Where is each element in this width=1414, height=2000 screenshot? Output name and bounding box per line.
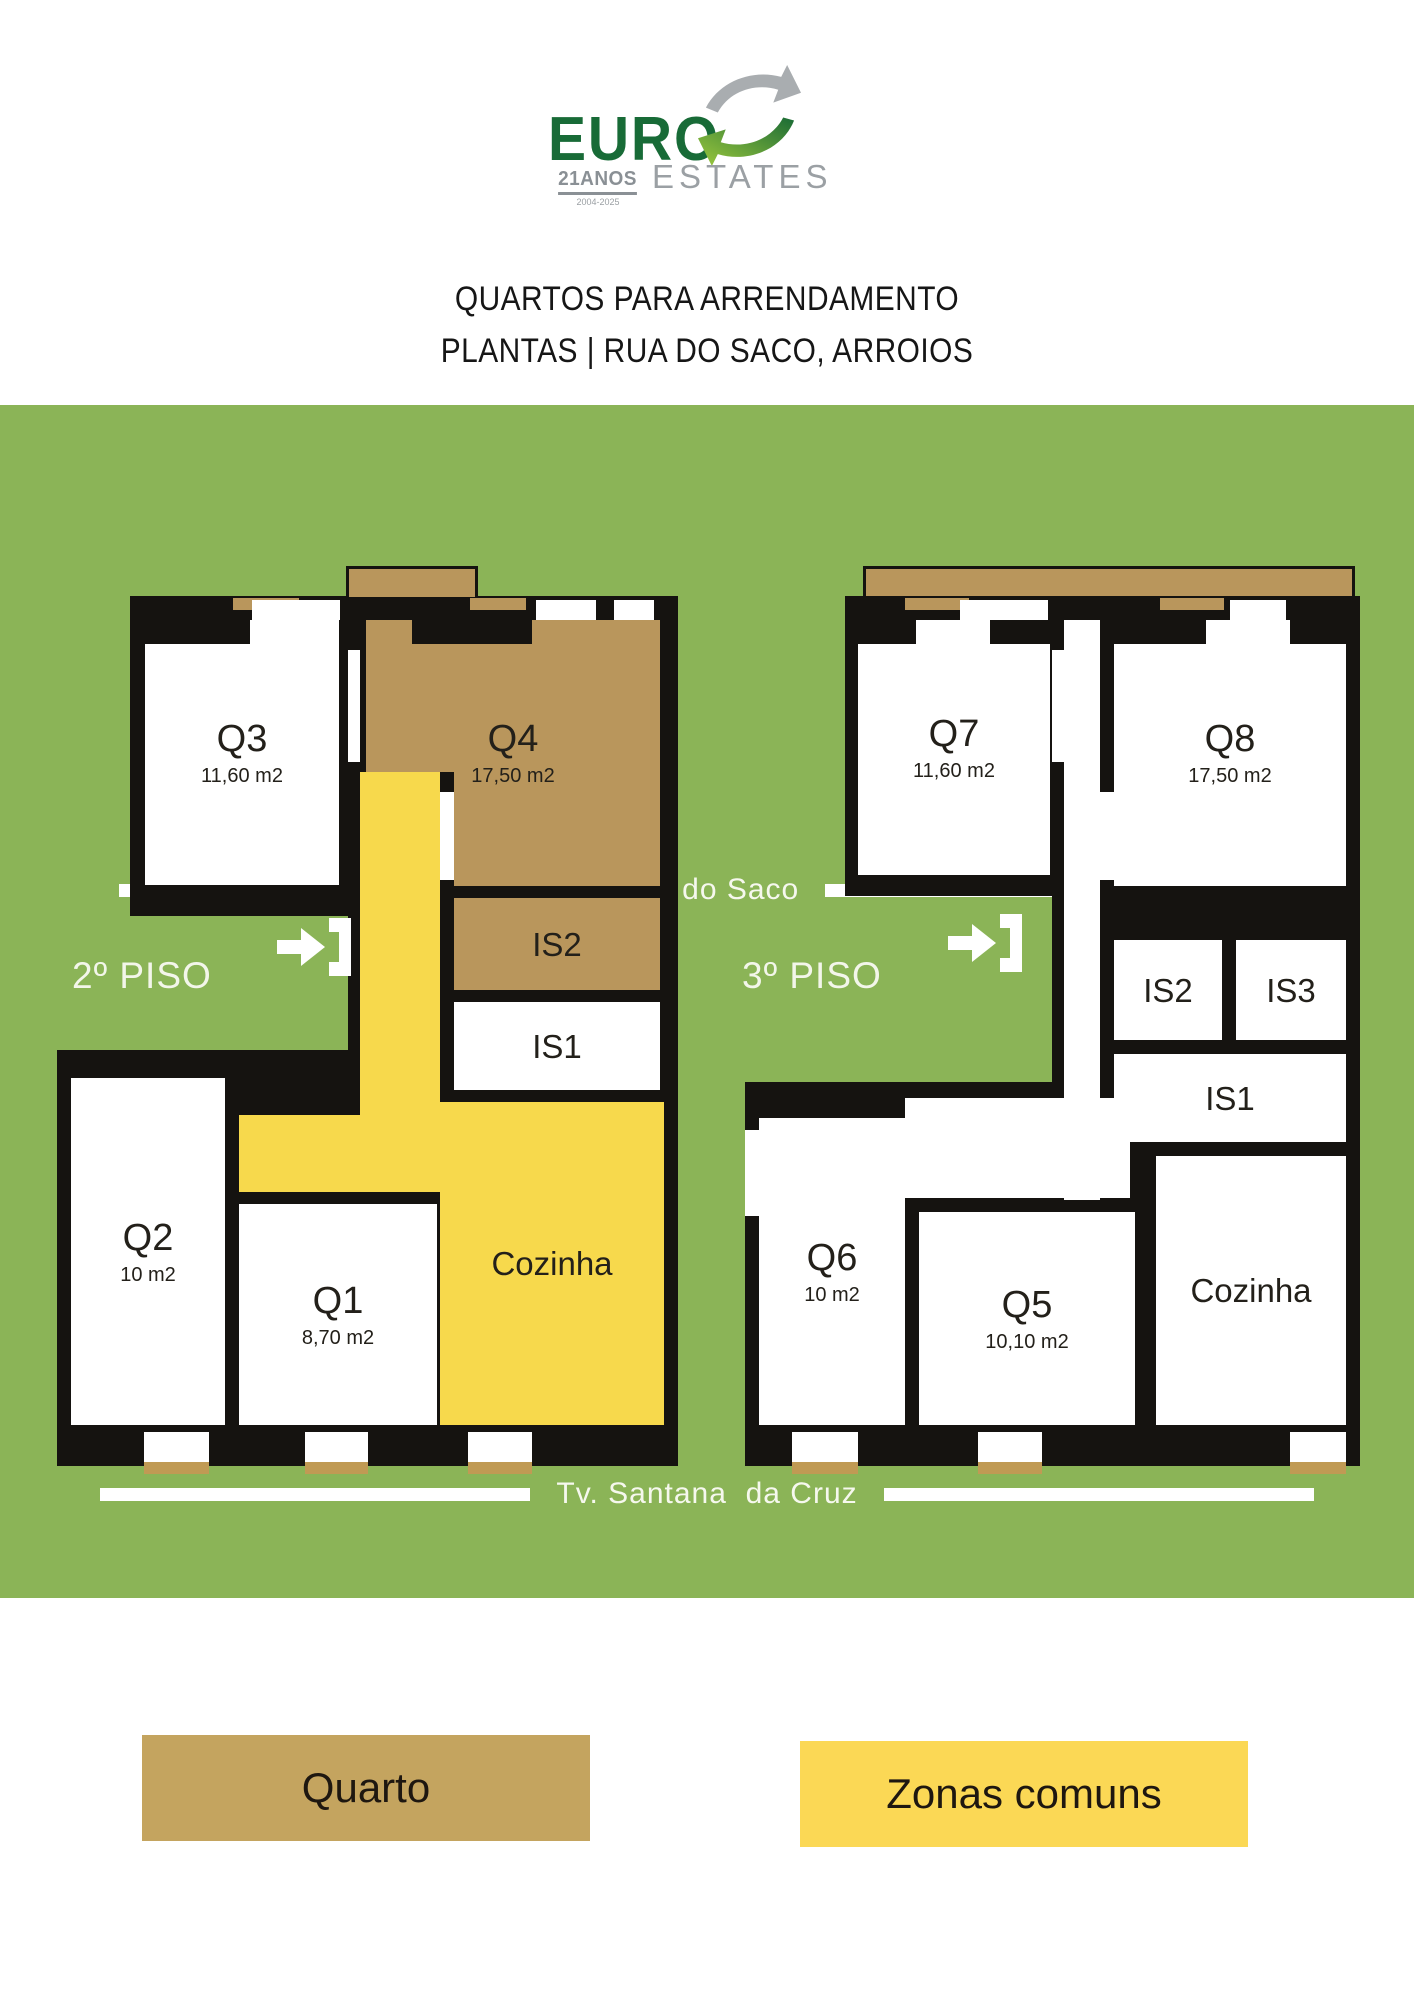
room-is2-left: IS2 [454,898,660,990]
window [960,600,1048,620]
entry-door-icon [948,914,1022,972]
wall-pier [412,620,532,644]
wall-pier [1290,620,1346,644]
window [1100,792,1114,880]
room-is1-right: IS1 [1114,1054,1346,1142]
window [348,650,360,762]
legend-quarto-swatch: Quarto [142,1735,590,1841]
room-name: Q6 [807,1239,858,1277]
room-area: 10 m2 [804,1285,860,1305]
window-sill [792,1462,858,1474]
room-q2: Q2 10 m2 [71,1078,225,1425]
wall-pier [990,620,1050,644]
room-name: IS2 [1143,974,1193,1007]
room-name: IS3 [1266,974,1316,1007]
logo-anos-text: 21ANOS [559,168,638,195]
entry-door-icon [277,918,351,976]
room-name: Cozinha [1190,1274,1311,1307]
room-name: Q5 [1002,1286,1053,1324]
legend-zonas-label: Zonas comuns [886,1770,1161,1818]
window-sill [978,1462,1042,1474]
street-bottom-row: Tv. Santana da Cruz [0,1477,1414,1511]
room-area: 10 m2 [120,1265,176,1285]
window [144,1432,209,1462]
room-area: 17,50 m2 [1188,766,1271,786]
room-cozinha-right: Cozinha [1156,1156,1346,1425]
window [1230,600,1286,620]
left-plan-corridor [360,772,440,1192]
window-sill [144,1462,209,1474]
left-plan-wall-insert [470,598,526,610]
window [614,600,654,620]
room-area: 17,50 m2 [471,766,554,786]
window-sill [1290,1462,1346,1474]
window-sill [468,1462,532,1474]
left-plan-hall [239,1115,360,1192]
room-name: Q1 [313,1282,364,1320]
room-q7: Q7 11,60 m2 [858,620,1050,875]
window [1052,650,1064,762]
street-bottom-label: Tv. Santana da Cruz [556,1479,857,1509]
floor-label-2piso: 2º PISO [72,957,212,994]
logo-sub-text: ESTATES [652,158,832,196]
legend-zonas-swatch: Zonas comuns [800,1741,1248,1847]
room-q8: Q8 17,50 m2 [1114,620,1346,886]
title-line-2: PLANTAS | RUA DO SACO, ARROIOS [85,334,1329,368]
wall-pier [1114,620,1206,644]
window-sill [305,1462,368,1474]
room-area: 11,60 m2 [913,761,995,781]
window [468,1432,532,1462]
window [536,600,596,620]
window [440,792,454,880]
wall-pier [145,620,250,644]
logo-years-text: 2004-2025 [550,197,646,207]
room-name: IS2 [532,928,582,961]
room-name: IS1 [532,1030,582,1063]
window [1290,1432,1346,1462]
right-plan-hall [905,1098,1130,1198]
window [792,1432,858,1462]
room-area: 8,70 m2 [302,1328,374,1348]
window [745,1130,759,1216]
room-area: 11,60 m2 [201,766,283,786]
street-bar-left [100,1488,530,1501]
room-q5: Q5 10,10 m2 [919,1212,1135,1425]
logo-anos-block: 21ANOS 2004-2025 [550,168,646,207]
room-name: Cozinha [491,1247,612,1280]
room-name: IS1 [1205,1082,1255,1115]
legend-quarto-label: Quarto [302,1764,430,1812]
room-name: Q2 [123,1219,174,1257]
wall-pier [858,620,916,644]
window [978,1432,1042,1462]
room-cozinha-left: Cozinha [440,1102,664,1425]
window [305,1432,368,1462]
poster-title: QUARTOS PARA ARRENDAMENTO PLANTAS | RUA … [0,282,1414,368]
room-is1-left: IS1 [454,1002,660,1090]
room-is3: IS3 [1236,940,1346,1040]
floor-label-3piso: 3º PISO [742,957,882,994]
logo-swoosh-arrows-icon [698,62,802,168]
left-plan-balcony [346,566,478,600]
floorplan-board: Rua do Saco Q3 11,60 m2 Q4 17,50 m2 IS2 … [0,405,1414,1598]
room-area: 10,10 m2 [985,1332,1068,1352]
room-q3: Q3 11,60 m2 [145,620,339,885]
room-q6: Q6 10 m2 [759,1118,905,1425]
poster-page: EURO 21ANOS 2004-2025 ESTATES QUARTOS PA… [0,0,1414,2000]
title-line-1: QUARTOS PARA ARRENDAMENTO [85,282,1329,316]
window [252,600,340,620]
right-plan-wall-insert [1160,598,1224,610]
room-name: Q4 [488,720,539,758]
room-name: Q8 [1205,720,1256,758]
room-name: Q7 [929,715,980,753]
room-is2-right: IS2 [1114,940,1222,1040]
room-name: Q3 [217,720,268,758]
street-bar-right [884,1488,1314,1501]
room-q1: Q1 8,70 m2 [239,1204,437,1425]
right-plan-balcony [863,566,1355,600]
